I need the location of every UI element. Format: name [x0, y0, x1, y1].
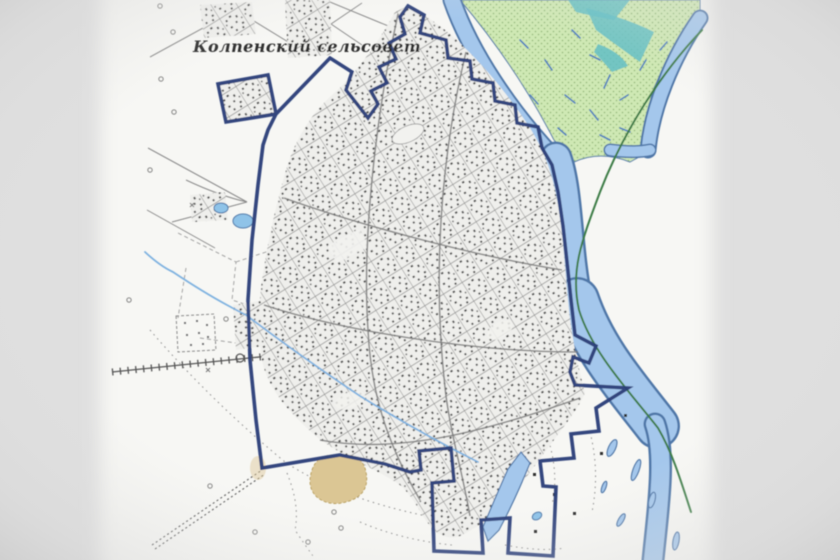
topographic-map: Колпенский сельсовет: [0, 0, 840, 560]
map-screenshot: Колпенский сельсовет: [0, 0, 840, 560]
photo-vignette: [0, 0, 840, 560]
